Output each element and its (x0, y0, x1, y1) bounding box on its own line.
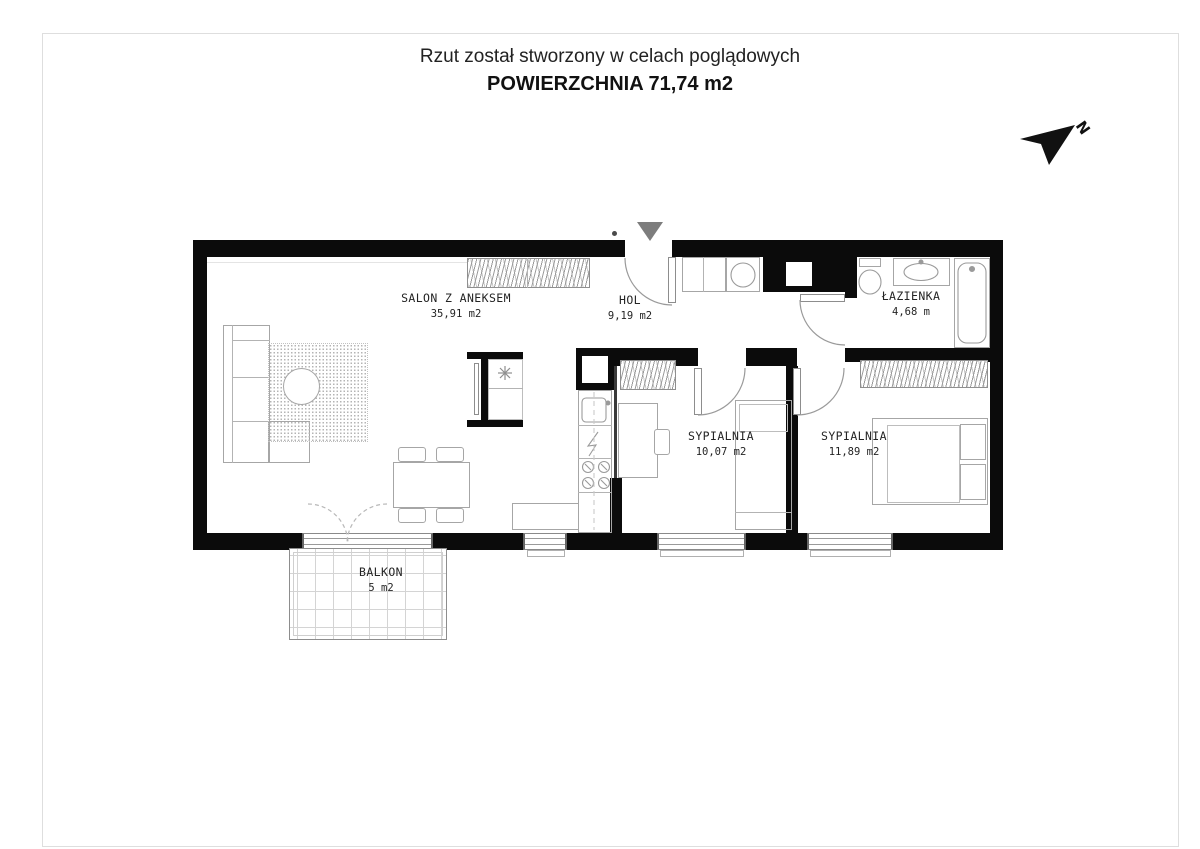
bedroom2-door-leaf (793, 368, 801, 415)
tv (474, 363, 479, 415)
salon-wardrobe (467, 258, 590, 288)
bedroom2-pillow-1 (960, 424, 986, 460)
bedroom2-pillow-2 (960, 464, 986, 500)
room-area: 5 m2 (359, 582, 403, 594)
kitchen-counter-vertical (578, 390, 612, 533)
dining-table (393, 462, 470, 508)
room-name: HOL (608, 294, 652, 307)
partition-shelf (488, 359, 523, 420)
wall-hall-bed2 (746, 348, 797, 366)
shaft-hall-void (786, 262, 812, 286)
toilet-tank (859, 258, 881, 267)
salon-wardrobe-divider (527, 258, 528, 288)
kitchen-unit-line-1 (578, 425, 612, 426)
dining-chair-4 (436, 508, 464, 523)
sofa-cushion-line-2 (232, 377, 270, 378)
bedroom1-window-sill (660, 550, 744, 557)
kitchen-unit-line-2 (578, 458, 612, 459)
room-label-sypialnia-1: SYPIALNIA 10,07 m2 (688, 430, 754, 458)
hall-cabinet-divider (703, 257, 704, 292)
guide-line (207, 262, 467, 263)
sofa-vertical (223, 325, 270, 463)
partition-shelf-divider (488, 388, 523, 389)
wall-bottom-1 (193, 533, 302, 550)
room-area: 4,68 m (882, 306, 941, 318)
room-name: BALKON (359, 566, 403, 579)
room-label-hol: HOL 9,19 m2 (608, 294, 652, 322)
doorbell-dot (612, 231, 617, 236)
room-label-salon: SALON Z ANEKSEM 35,91 m2 (401, 292, 511, 320)
washbasin-counter (893, 258, 950, 286)
bedroom2-wardrobe (860, 360, 988, 388)
bathtub (954, 258, 990, 348)
kitchen-window-sill (527, 550, 565, 557)
kitchen-window (523, 533, 567, 550)
wall-top-left (193, 240, 625, 257)
bedroom2-mattress (887, 425, 960, 503)
wall-right (990, 240, 1003, 550)
room-area: 11,89 m2 (821, 446, 887, 458)
bedroom1-door-leaf (694, 368, 702, 415)
hall-cabinet (682, 257, 726, 292)
room-name: SYPIALNIA (821, 430, 887, 443)
room-area: 9,19 m2 (608, 310, 652, 322)
floor-plan-page: { "document": { "disclaimer": "Rzut zost… (0, 0, 1200, 849)
wall-bottom-5 (893, 533, 1003, 550)
tv-partition-cap-top (467, 352, 523, 359)
bedroom1-pillow (739, 404, 788, 432)
disclaimer-text: Rzut został stworzony w celach poglądowy… (0, 44, 1200, 70)
bedroom1-chair (654, 429, 670, 455)
kitchen-unit-line-3 (578, 492, 612, 493)
sofa-cushion-line-3 (232, 421, 270, 422)
wall-bottom-3 (567, 533, 657, 550)
bedroom1-window (657, 533, 746, 550)
bedroom1-bed-line (735, 512, 792, 513)
bedroom1-wardrobe (620, 360, 676, 390)
room-name: ŁAZIENKA (882, 290, 941, 303)
room-label-sypialnia-2: SYPIALNIA 11,89 m2 (821, 430, 887, 458)
dining-chair-3 (398, 508, 426, 523)
room-label-balkon: BALKON 5 m2 (359, 566, 403, 594)
room-name: SYPIALNIA (688, 430, 754, 443)
kitchen-counter-bottom (512, 503, 579, 530)
room-area: 35,91 m2 (401, 308, 511, 320)
washing-machine (726, 257, 760, 292)
bedroom2-window (807, 533, 893, 550)
shaft-kitchen-void (582, 356, 608, 383)
room-area: 10,07 m2 (688, 446, 754, 458)
coffee-table (283, 368, 320, 405)
total-area-text: POWIERZCHNIA 71,74 m2 (0, 70, 1200, 98)
entrance-door-leaf (668, 257, 676, 303)
balcony-terrace (289, 548, 447, 640)
sofa-back-line (232, 325, 233, 463)
bedroom1-desk (618, 403, 658, 478)
title-block: Rzut został stworzony w celach poglądowy… (0, 44, 1200, 98)
tv-partition-post (481, 359, 488, 420)
entrance-marker-icon (637, 222, 663, 241)
bathroom-door-leaf (800, 294, 845, 302)
wall-bath-west (845, 257, 857, 298)
dining-chair-2 (436, 447, 464, 462)
tv-partition-cap-bottom (467, 420, 523, 427)
bedroom2-window-sill (810, 550, 891, 557)
room-name: SALON Z ANEKSEM (401, 292, 511, 305)
sofa-cushion-line-1 (232, 340, 270, 341)
wall-kitchen-thin (614, 366, 617, 478)
dining-chair-1 (398, 447, 426, 462)
room-label-lazienka: ŁAZIENKA 4,68 m (882, 290, 941, 318)
wall-bottom-4 (746, 533, 807, 550)
wall-left (193, 240, 207, 550)
wall-top-right (672, 240, 1003, 257)
